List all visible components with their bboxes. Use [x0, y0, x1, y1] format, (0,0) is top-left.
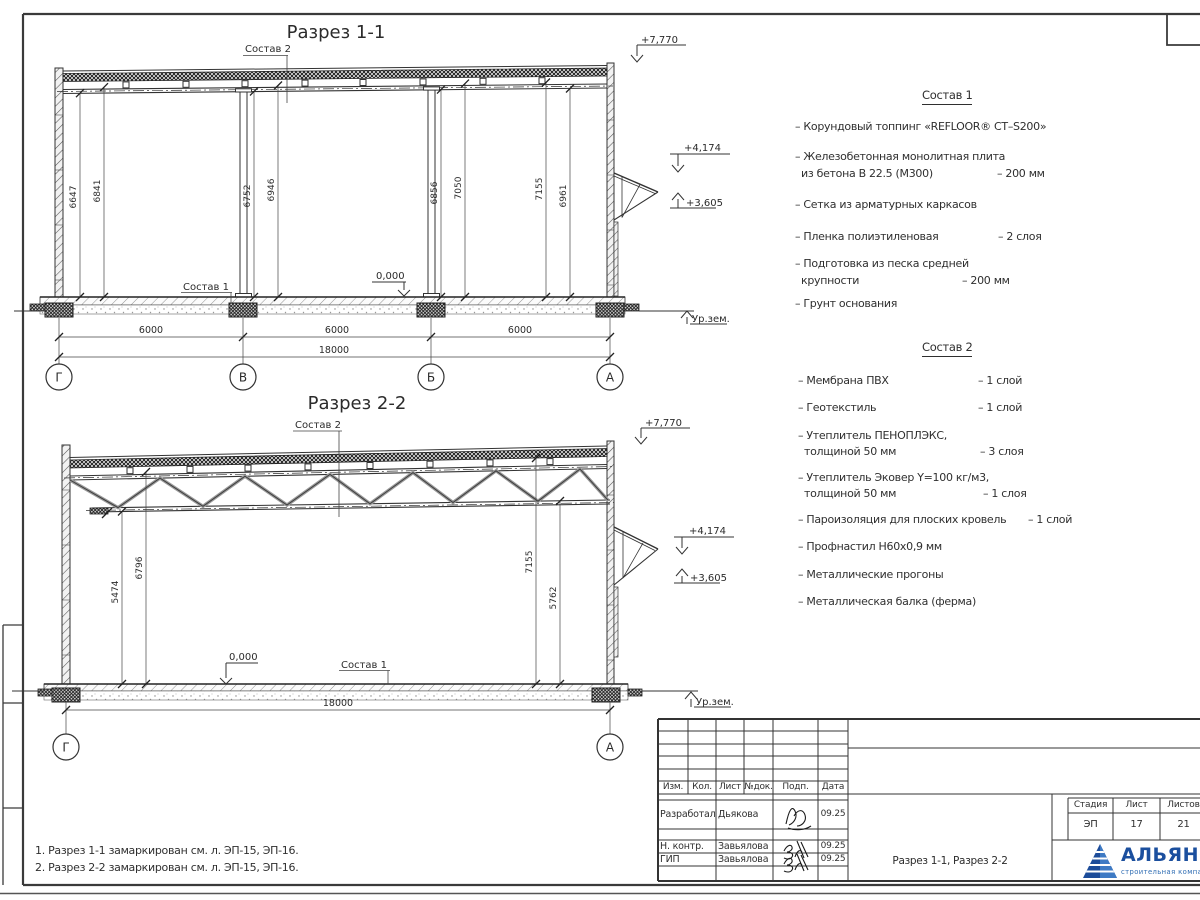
elev-0000: 0,000 [376, 271, 405, 282]
tb-name: Завьялова [718, 855, 768, 865]
truss-seat [90, 508, 108, 514]
list-item: – Утеплитель Эковер Y=100 кг/м3, [798, 472, 989, 483]
tb-role: Н. контр. [660, 842, 704, 852]
elev-3605: +3,605 [690, 573, 727, 584]
foundation-pad [596, 303, 624, 317]
sostav1-callout: Состав 1 [183, 282, 229, 293]
svg-text:6946: 6946 [267, 178, 277, 201]
list-item-line2: толщиной 50 мм [804, 446, 896, 457]
svg-text:6000: 6000 [508, 325, 532, 336]
grid-bubbles [53, 734, 623, 760]
signature-zavyalova-2 [784, 854, 808, 872]
list-item-value: – 1 слой [978, 375, 1022, 386]
corner-stamp-box [1167, 14, 1200, 45]
tb-sheets-value: 21 [1160, 820, 1200, 830]
floor-slab [14, 297, 694, 317]
wall-right [607, 441, 614, 684]
tb-sheet-header: Лист [1113, 801, 1160, 810]
list-item: – Сетка из арматурных каркасов [795, 199, 977, 210]
signature-zavyalova-1 [784, 841, 808, 859]
foundation-pad [45, 303, 73, 317]
svg-text:7155: 7155 [525, 551, 535, 574]
svg-text:5474: 5474 [111, 580, 121, 603]
company-logo-icon [1080, 844, 1120, 878]
svg-text:6000: 6000 [139, 325, 163, 336]
svg-text:В: В [239, 371, 247, 385]
list-item-value: – 1 слоя [983, 488, 1027, 499]
list-item: – Пароизоляция для плоских кровель [798, 514, 1006, 525]
list-item: – Корундовый топпинг «REFLOOR® CT–S200» [795, 121, 1046, 132]
list-item: – Грунт основания [795, 298, 897, 309]
list-item: – Мембрана ПВХ [798, 375, 889, 386]
canopy [614, 527, 658, 657]
list-item-value: – 1 слой [978, 402, 1022, 413]
svg-text:5762: 5762 [549, 587, 559, 610]
list-item: – Металлическая балка (ферма) [798, 596, 976, 607]
wall-joints [55, 115, 614, 285]
svg-text:6841: 6841 [93, 180, 103, 203]
company-subtitle: строительная компания [1121, 869, 1200, 876]
elev-4174: +4,174 [689, 526, 726, 537]
list-item: – Профнастил Н60х0,9 мм [798, 541, 942, 552]
sostav2-callout: Состав 2 [245, 44, 291, 55]
list-item-value: – 200 мм [997, 168, 1045, 179]
svg-text:Б: Б [427, 371, 435, 385]
list-item-line2: крупности [801, 275, 859, 286]
tb-role: Разработал [660, 810, 716, 820]
list-item: – Металлические прогоны [798, 569, 943, 580]
svg-text:18000: 18000 [319, 345, 349, 356]
list-item: – Пленка полиэтиленовая [795, 231, 939, 242]
list-item-value: – 3 слоя [980, 446, 1024, 457]
tb-date: 09.25 [818, 855, 848, 864]
list-item-line2: толщиной 50 мм [804, 488, 896, 499]
company-name: АЛЬЯНС [1121, 846, 1200, 865]
ground-level-label: Ур.зем. [696, 697, 734, 708]
foundation-pad [592, 688, 620, 702]
list-item-line2: из бетона В 22.5 (М300) [801, 168, 933, 179]
list-item-value: – 1 слой [1028, 514, 1072, 525]
svg-text:А: А [606, 371, 615, 385]
elev-7770: +7,770 [641, 35, 678, 46]
height-dim-labels: 5474 6796 7155 5762 [111, 551, 559, 610]
note-line: 2. Разрез 2-2 замаркирован см. л. ЭП-15,… [35, 862, 298, 873]
floor-slab [12, 684, 698, 702]
tb-date: 09.25 [818, 842, 848, 851]
svg-text:6961: 6961 [559, 185, 569, 208]
sostav2-callout: Состав 2 [295, 420, 341, 431]
svg-text:18000: 18000 [323, 698, 353, 709]
section-1-title: Разрез 1-1 [287, 22, 386, 43]
list-item-value: – 2 слоя [998, 231, 1042, 242]
foundation-pad [229, 303, 257, 317]
foundation-pad [417, 303, 445, 317]
svg-text:А: А [606, 741, 615, 755]
list-item: – Утеплитель ПЕНОПЛЭКС, [798, 430, 947, 441]
signature-dyakova [786, 809, 811, 830]
elev-0000: 0,000 [229, 652, 258, 663]
list-item: – Железобетонная монолитная плита [795, 151, 1005, 162]
drawing-sheet: { "section1": { "title": "Разрез 1-1", "… [0, 0, 1200, 900]
svg-text:6647: 6647 [69, 186, 79, 209]
svg-text:6752: 6752 [243, 185, 253, 208]
svg-text:6796: 6796 [135, 556, 145, 579]
svg-text:7050: 7050 [454, 176, 464, 199]
sostav2-list-title: Состав 2 [922, 342, 972, 357]
svg-text:Г: Г [62, 741, 69, 755]
elev-7770: +7,770 [645, 418, 682, 429]
section-1-drawing: Разрез 1-1 [14, 22, 730, 390]
list-item-value: – 200 мм [962, 275, 1010, 286]
tb-role: ГИП [660, 855, 679, 865]
sostav1-callout: Состав 1 [341, 660, 387, 671]
wall-left [62, 445, 70, 684]
svg-text:6856: 6856 [430, 181, 440, 204]
height-dim-labels: 6647 6841 6752 6946 6856 7050 7155 6961 [69, 176, 569, 208]
wall-right [607, 63, 614, 297]
svg-text:7155: 7155 [535, 178, 545, 201]
foundation-pad [52, 688, 80, 702]
tb-header-podp: Подп. [773, 783, 818, 792]
list-item: – Геотекстиль [798, 402, 876, 413]
tb-header-data: Дата [818, 783, 848, 792]
tb-sheet-value: 17 [1113, 820, 1160, 830]
section-2-drawing: Разрез 2-2 [12, 393, 734, 760]
tb-name: Завьялова [718, 842, 768, 852]
section-2-title: Разрез 2-2 [308, 393, 407, 414]
tb-sheets-header: Листов [1160, 801, 1200, 810]
height-dimensions [76, 79, 574, 302]
tb-name: Дьякова [718, 810, 758, 820]
roof-beam [57, 84, 613, 94]
list-item: – Подготовка из песка средней [795, 258, 969, 269]
ground-level-label: Ур.зем. [692, 314, 730, 325]
tb-header-ndok: №док. [744, 783, 773, 792]
elev-3605: +3,605 [686, 198, 723, 209]
tb-header-list: Лист [716, 783, 744, 792]
svg-text:6000: 6000 [325, 325, 349, 336]
svg-text:Г: Г [55, 371, 62, 385]
canopy [614, 173, 658, 296]
tb-header-kol: Кол. [688, 783, 716, 792]
truss-bottom-chord [86, 500, 614, 512]
tb-stage-header: Стадия [1068, 801, 1113, 810]
height-dimensions [118, 454, 564, 688]
elev-4174: +4,174 [684, 143, 721, 154]
sostav1-list-title: Состав 1 [922, 90, 972, 105]
tb-doc-title: Разрез 1-1, Разрез 2-2 [848, 856, 1052, 867]
wall-left [55, 68, 63, 297]
grid-bubbles [46, 364, 623, 390]
note-line: 1. Разрез 1-1 замаркирован см. л. ЭП-15,… [35, 845, 298, 856]
tb-date: 09.25 [818, 810, 848, 819]
left-margin-boxes [3, 625, 23, 885]
tb-stage-value: ЭП [1068, 820, 1113, 830]
tb-header-izm: Изм. [658, 783, 688, 792]
elevation-marks [220, 428, 734, 707]
dim-ticks [76, 79, 574, 302]
